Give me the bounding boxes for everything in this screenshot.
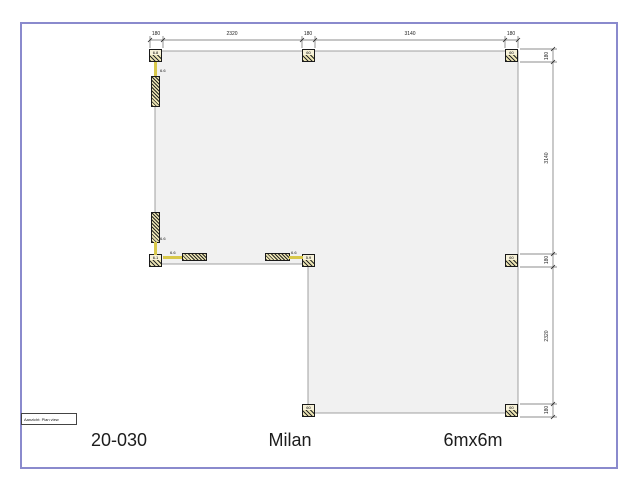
connector-left-bottom (154, 242, 157, 255)
connector-inner-horizontal (289, 256, 303, 259)
post-top-middle: 60 (302, 49, 315, 62)
brace-left-bottom-vertical (151, 212, 160, 243)
post-label: 6.8 (150, 50, 161, 55)
right-dimension-lines (520, 49, 557, 417)
post-bottom-middle: 60 (302, 404, 315, 417)
dim-right-180-bottom: 180 (544, 406, 550, 414)
post-right-middle: 60 (505, 254, 518, 267)
brace-inner-horizontal (265, 253, 290, 261)
post-label: 6.1 (150, 255, 161, 260)
dim-top-180-right: 180 (507, 31, 515, 37)
connector-label: 6.6 (291, 250, 297, 255)
dim-top-3140: 3140 (404, 31, 415, 37)
top-dimension-lines (150, 36, 518, 48)
dim-right-180-mid: 180 (544, 256, 550, 264)
connector-label: 6.6 (170, 250, 176, 255)
post-bottom-right: 60 (505, 404, 518, 417)
post-label: 60 (506, 255, 517, 260)
post-label: 5.9 (303, 255, 314, 260)
connector-label: 6.6 (160, 68, 166, 73)
post-label: 60 (506, 405, 517, 410)
drawing-sheet: 180 2320 180 3140 180 180 3140 180 2320 … (0, 0, 640, 480)
connector-label: 6.6 (160, 236, 166, 241)
post-left-bottom: 6.1 (149, 254, 162, 267)
dim-right-3140: 3140 (544, 152, 550, 163)
connector-bottom-horizontal (163, 256, 183, 259)
model-name: Milan (268, 429, 311, 451)
brace-bottom-horizontal (182, 253, 207, 261)
dim-top-180-left: 180 (152, 31, 160, 37)
post-label: 60 (303, 405, 314, 410)
dim-right-180-top: 180 (544, 52, 550, 60)
project-code: 20-030 (91, 429, 147, 451)
brace-top-left-vertical (151, 76, 160, 107)
view-label: Aanzicht: Plan view (22, 414, 76, 422)
view-label-box: Aanzicht: Plan view (21, 413, 77, 425)
size-label: 6mx6m (443, 429, 502, 451)
post-label: 60 (506, 50, 517, 55)
plan-outline (155, 51, 518, 413)
post-top-left: 6.8 (149, 49, 162, 62)
dim-top-2320: 2320 (226, 31, 237, 37)
post-top-right: 60 (505, 49, 518, 62)
post-inner-corner: 5.9 (302, 254, 315, 267)
dim-right-2320: 2320 (544, 330, 550, 341)
dim-top-180-mid: 180 (304, 31, 312, 37)
connector-top-left (154, 62, 157, 77)
post-label: 60 (303, 50, 314, 55)
